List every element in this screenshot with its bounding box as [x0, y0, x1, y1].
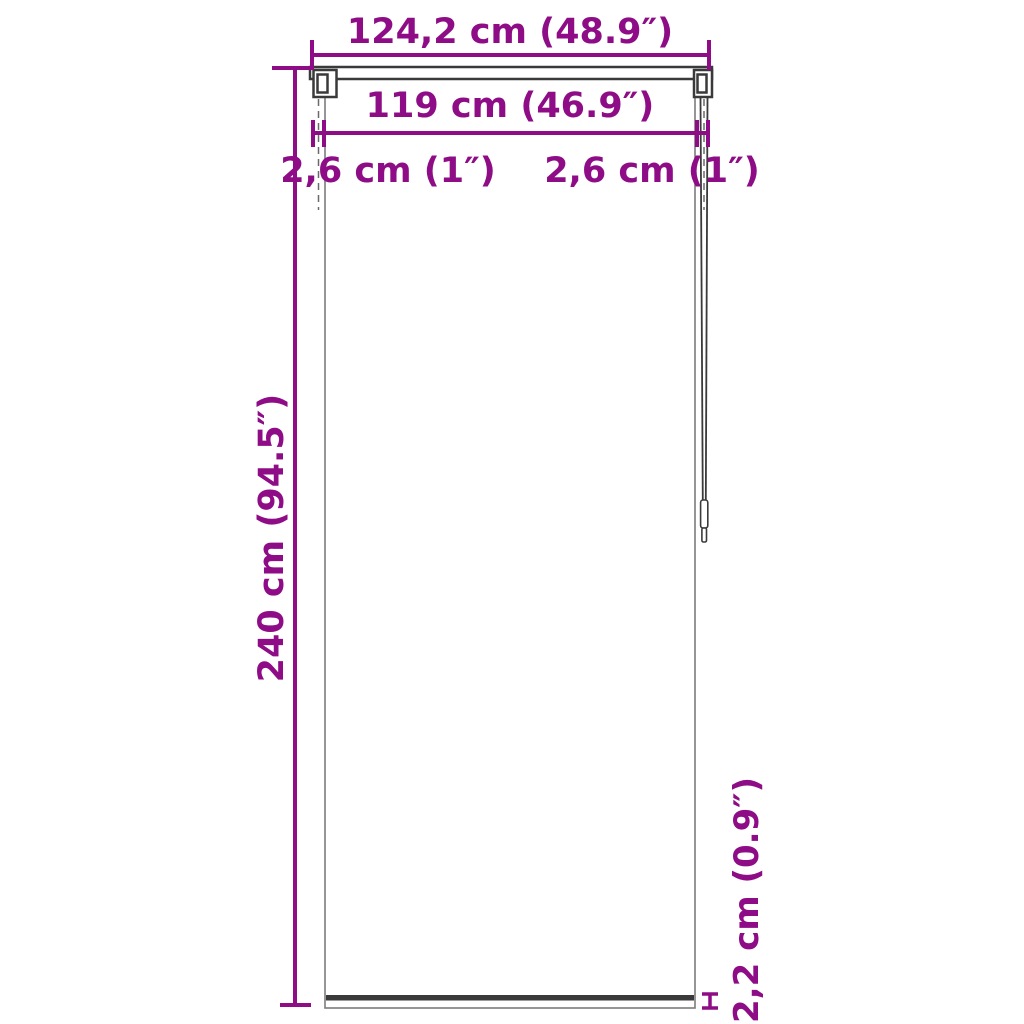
header-rail [310, 67, 712, 79]
dimension-label-right-offset: 2,6 cm (1″) [544, 151, 760, 191]
dimension-label-bottom-bar: 2,2 cm (0.9″) [727, 777, 767, 1023]
bottom-bar [326, 995, 694, 1001]
fabric-panel [325, 79, 695, 1008]
roller-blind-drawing [310, 67, 712, 1008]
cord-handle [702, 528, 707, 542]
dimension-label-height: 240 cm (94.5″) [252, 394, 292, 683]
dimension-label-left-offset: 2,6 cm (1″) [280, 151, 496, 191]
dimension-height: 240 cm (94.5″) [252, 68, 311, 1005]
left-bracket-inner [318, 75, 328, 93]
dimension-label-fabric-width: 119 cm (46.9″) [366, 86, 655, 126]
cord-connector [701, 500, 708, 528]
dimension-bottom-bar: 2,2 cm (0.9″) [702, 777, 767, 1023]
right-bracket-inner [698, 75, 707, 93]
diagram-canvas: 124,2 cm (48.9″) 119 cm (46.9″) 2,6 cm (… [0, 0, 1024, 1024]
roller-blind-dimension-diagram: 124,2 cm (48.9″) 119 cm (46.9″) 2,6 cm (… [0, 0, 1024, 1024]
dimension-total-width: 124,2 cm (48.9″) [312, 12, 709, 70]
dimension-label-total-width: 124,2 cm (48.9″) [347, 12, 673, 52]
